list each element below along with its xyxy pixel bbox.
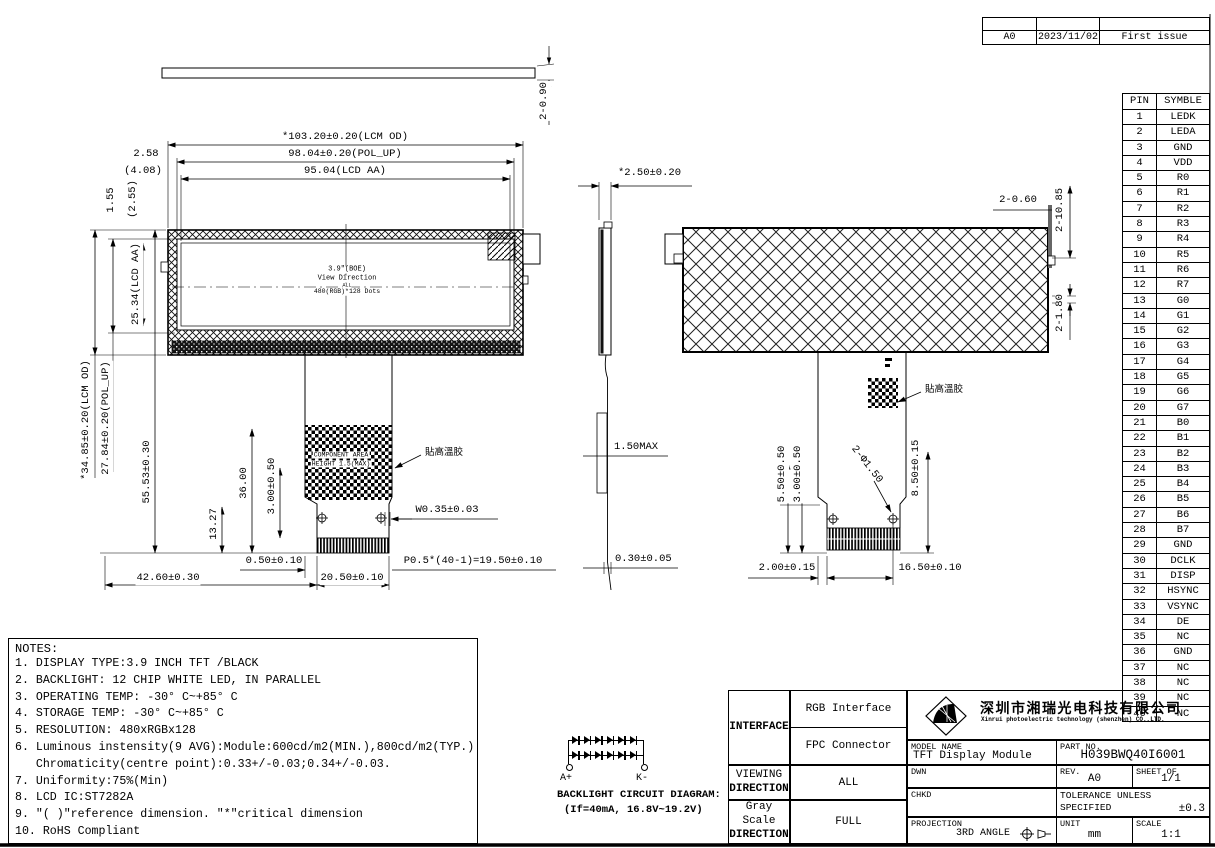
- anode-terminal-icon: [566, 764, 573, 771]
- pin-row: 32HSYNC: [1123, 584, 1209, 599]
- pin-symbol: DISP: [1157, 569, 1209, 583]
- led-icon: [572, 751, 582, 760]
- tolerance-value: ±0.3: [1179, 803, 1205, 815]
- unit-label: UNIT: [1060, 819, 1080, 829]
- screen-size-label: 3.9"(BOE): [328, 267, 366, 274]
- pin-table-body: 1LEDK2LEDA3GND4VDD5R06R17R28R39R410R511R…: [1123, 110, 1209, 721]
- pin-row: 1LEDK: [1123, 110, 1209, 125]
- pin-number: 6: [1123, 186, 1157, 200]
- screen-view-direction-label: View Direction: [318, 276, 377, 283]
- pin-row: 17G4: [1123, 355, 1209, 370]
- pin-row: 10R5: [1123, 248, 1209, 263]
- chkd-label: CHKD: [911, 790, 931, 800]
- pin-symbol: B4: [1157, 477, 1209, 491]
- part-no-cell: PART NO. H039BWQ40I6001: [1056, 740, 1210, 765]
- pin-number: 10: [1123, 248, 1157, 262]
- pin-symbol: VDD: [1157, 156, 1209, 170]
- company-logo-cell: 深圳市湘瑞光电科技有限公司 Xinrui photoelectric techn…: [907, 690, 1210, 740]
- third-angle-symbol-icon: [1020, 827, 1052, 841]
- connector-type: FPC Connector: [791, 728, 906, 764]
- note-line: 3. OPERATING TEMP: -30° C~+85° C: [15, 690, 477, 707]
- pin-row: 18G5: [1123, 370, 1209, 385]
- dim-2-58: 2.58: [132, 149, 159, 161]
- pin-number: 25: [1123, 477, 1157, 491]
- pin-header: PIN: [1123, 94, 1157, 109]
- pin-number: 32: [1123, 584, 1157, 598]
- pin-row: 9R4: [1123, 232, 1209, 247]
- engineering-drawing-sheet: 2-0.90 *103.20±0.20(LCM OD) 98.04±0.20(P…: [0, 0, 1215, 848]
- pin-row: 26B5: [1123, 492, 1209, 507]
- pin-symbol: HSYNC: [1157, 584, 1209, 598]
- pin-symbol: B7: [1157, 523, 1209, 537]
- dim-0-50: 0.50±0.10: [245, 556, 304, 568]
- pin-row: 7R2: [1123, 202, 1209, 217]
- pin-number: 19: [1123, 385, 1157, 399]
- pin-row: 2LEDA: [1123, 125, 1209, 140]
- gray-scale-value-cell: FULL: [790, 800, 907, 844]
- rev-value: A0: [1057, 773, 1132, 785]
- gray-scale-label-line1: Gray Scale: [729, 801, 789, 829]
- company-name-en: Xinrui photoelectric technology (shenzhe…: [981, 716, 1165, 723]
- led-icon: [595, 736, 605, 745]
- viewing-direction-label-cell: VIEWING DIRECTION: [728, 765, 790, 800]
- pin-symbol: G7: [1157, 401, 1209, 415]
- led-icon: [607, 751, 617, 760]
- pin-number: 14: [1123, 309, 1157, 323]
- side-view: [597, 222, 612, 590]
- pin-number: 12: [1123, 278, 1157, 292]
- sheet-cell: SHEET OF 1/1: [1132, 765, 1210, 788]
- dim-lcm-od-width: *103.20±0.20(LCM OD): [281, 132, 409, 144]
- viewing-direction-value: ALL: [791, 766, 906, 799]
- pin-symbol: LEDK: [1157, 110, 1209, 124]
- top-view: [162, 46, 554, 125]
- pin-number: 28: [1123, 523, 1157, 537]
- tape-annotation-back: 貼高溫胶: [924, 385, 964, 395]
- pin-number: 17: [1123, 355, 1157, 369]
- cathode-terminal-icon: [641, 764, 648, 771]
- interface-type: RGB Interface: [791, 691, 906, 727]
- company-name-cn: 深圳市湘瑞光电科技有限公司: [980, 698, 1182, 718]
- pin-row: 6R1: [1123, 186, 1209, 201]
- dim-2-55: (2.55): [128, 179, 140, 219]
- pin-row: 16G3: [1123, 339, 1209, 354]
- scale-value: 1:1: [1133, 829, 1209, 841]
- pin-row: 38NC: [1123, 676, 1209, 691]
- pin-number: 35: [1123, 630, 1157, 644]
- dim-aa-height: 25.34(LCD AA): [131, 242, 143, 326]
- company-logo-icon: [924, 695, 968, 737]
- pin-symbol: GND: [1157, 645, 1209, 659]
- pin-number: 16: [1123, 339, 1157, 353]
- revision-description: First issue: [1099, 30, 1210, 45]
- dim-1-55: 1.55: [106, 186, 118, 213]
- pin-symbol: B6: [1157, 508, 1209, 522]
- projection-cell: PROJECTION 3RD ANGLE: [907, 817, 1057, 844]
- revision-header-rev: [982, 17, 1037, 31]
- gray-scale-label-line2: DIRECTION: [729, 829, 788, 843]
- interface-row2-cell: FPC Connector: [790, 727, 907, 765]
- led-icon: [630, 751, 640, 760]
- dim-aa-width: 95.04(LCD AA): [303, 166, 387, 178]
- note-line: 9. ″( )″reference dimension. ″*″critical…: [15, 807, 477, 824]
- note-line: 5. RESOLUTION: 480xRGBx128: [15, 723, 477, 740]
- tape-annotation-front: 貼高溫胶: [424, 448, 464, 458]
- pin-symbol: VSYNC: [1157, 600, 1209, 614]
- pin-number: 22: [1123, 431, 1157, 445]
- pin-number: 11: [1123, 263, 1157, 277]
- component-height-label: HEIGHT 1.5(MAX): [311, 460, 372, 467]
- led-icon: [630, 736, 640, 745]
- projection-value: 3RD ANGLE: [956, 828, 1010, 839]
- projection-label: PROJECTION: [911, 819, 962, 829]
- model-name-value: TFT Display Module: [908, 750, 1056, 762]
- dim-4-08: (4.08): [123, 166, 163, 178]
- screen-resolution-label: 480(RGB)*128 Dots: [314, 289, 380, 296]
- pin-row: 13G0: [1123, 294, 1209, 309]
- dim-back-5-50: 5.50±0.50: [777, 445, 789, 504]
- circuit-wire: [568, 740, 569, 764]
- pin-number: 15: [1123, 324, 1157, 338]
- dim-back-8-50: 8.50±0.15: [911, 439, 923, 498]
- pin-row: 27B6: [1123, 508, 1209, 523]
- pin-row: 15G2: [1123, 324, 1209, 339]
- pin-symbol: DCLK: [1157, 554, 1209, 568]
- pin-symbol: R2: [1157, 202, 1209, 216]
- back-view: [665, 205, 1055, 550]
- pin-symbol: R7: [1157, 278, 1209, 292]
- scale-label: SCALE: [1136, 819, 1162, 829]
- pin-row: 35NC: [1123, 630, 1209, 645]
- pin-row: 14G1: [1123, 309, 1209, 324]
- pin-symbol: G1: [1157, 309, 1209, 323]
- pin-row: 36GND: [1123, 645, 1209, 660]
- dim-back-1-80: 2-1.80: [1055, 293, 1067, 333]
- pin-symbol: G6: [1157, 385, 1209, 399]
- pin-symbol: R4: [1157, 232, 1209, 246]
- pin-symbol: B3: [1157, 462, 1209, 476]
- led-icon: [607, 736, 617, 745]
- pin-row: 33VSYNC: [1123, 600, 1209, 615]
- pin-number: 26: [1123, 492, 1157, 506]
- dim-55-53: 55.53±0.30: [142, 439, 154, 504]
- pin-number: 1: [1123, 110, 1157, 124]
- component-area-label: COMPONENT AREA: [313, 451, 370, 458]
- pin-table-header: PIN SYMBLE: [1123, 94, 1209, 110]
- tolerance-label-line1: TOLERANCE UNLESS: [1060, 790, 1151, 801]
- pin-row: 12R7: [1123, 278, 1209, 293]
- led-icon: [618, 751, 628, 760]
- pin-row: 34DE: [1123, 615, 1209, 630]
- note-line: 10. RoHS Compliant: [15, 824, 477, 841]
- pin-row: 19G6: [1123, 385, 1209, 400]
- dim-w0-35: W0.35±0.03: [414, 505, 479, 517]
- pin-symbol: NC: [1157, 676, 1209, 690]
- cathode-label: K-: [636, 773, 648, 784]
- circuit-wire: [643, 740, 644, 764]
- pin-table: PIN SYMBLE 1LEDK2LEDA3GND4VDD5R06R17R28R…: [1122, 93, 1210, 722]
- pin-symbol: G5: [1157, 370, 1209, 384]
- rev-cell: REV. A0: [1056, 765, 1133, 788]
- pin-row: 30DCLK: [1123, 554, 1209, 569]
- pin-symbol: NC: [1157, 661, 1209, 675]
- pin-symbol: B5: [1157, 492, 1209, 506]
- pin-number: 13: [1123, 294, 1157, 308]
- pin-row: 4VDD: [1123, 156, 1209, 171]
- pin-number: 3: [1123, 141, 1157, 155]
- pin-number: 38: [1123, 676, 1157, 690]
- front-dimension-lines: [90, 141, 556, 590]
- tolerance-label-line2: SPECIFIED: [1060, 802, 1111, 813]
- pin-row: 8R3: [1123, 217, 1209, 232]
- backlight-diagram-spec: (If=40mA, 16.8V~19.2V): [564, 804, 703, 816]
- led-icon: [584, 751, 594, 760]
- pin-number: 29: [1123, 538, 1157, 552]
- dim-42-60: 42.60±0.30: [135, 573, 200, 585]
- pin-row: 29GND: [1123, 538, 1209, 553]
- pin-number: 31: [1123, 569, 1157, 583]
- anode-label: A+: [560, 773, 572, 784]
- led-icon: [595, 751, 605, 760]
- pin-number: 27: [1123, 508, 1157, 522]
- pin-row: 31DISP: [1123, 569, 1209, 584]
- pin-symbol: G0: [1157, 294, 1209, 308]
- tolerance-cell: TOLERANCE UNLESS SPECIFIED ±0.3: [1056, 788, 1210, 817]
- pin-row: 37NC: [1123, 661, 1209, 676]
- dim-lcm-od-height: *34.85±0.20(LCM OD): [81, 359, 93, 481]
- unit-cell: UNIT mm: [1056, 817, 1133, 844]
- pin-number: 36: [1123, 645, 1157, 659]
- pin-row: 23B2: [1123, 447, 1209, 462]
- dim-13-27: 13.27: [209, 507, 221, 541]
- pin-row: 11R6: [1123, 263, 1209, 278]
- dim-back-10-85: 2-10.85: [1055, 187, 1067, 233]
- pin-row: 5R0: [1123, 171, 1209, 186]
- notes-title: NOTES:: [15, 642, 477, 656]
- interface-row1-cell: RGB Interface: [790, 690, 907, 728]
- pin-symbol: G3: [1157, 339, 1209, 353]
- pin-number: 24: [1123, 462, 1157, 476]
- revision-rev: A0: [982, 30, 1037, 45]
- dim-side-thickness: *2.50±0.20: [617, 168, 682, 180]
- dwn-label: DWN: [911, 767, 926, 777]
- model-name-cell: MODEL NAME TFT Display Module: [907, 740, 1057, 765]
- pin-symbol: R3: [1157, 217, 1209, 231]
- dim-top-thickness: 2-0.90: [539, 81, 551, 121]
- pin-symbol: R0: [1157, 171, 1209, 185]
- pin-symbol: R5: [1157, 248, 1209, 262]
- pin-row: 21B0: [1123, 416, 1209, 431]
- revision-date: 2023/11/02: [1036, 30, 1100, 45]
- pin-symbol: B2: [1157, 447, 1209, 461]
- pin-symbol: G4: [1157, 355, 1209, 369]
- pin-symbol: R1: [1157, 186, 1209, 200]
- unit-value: mm: [1057, 829, 1132, 841]
- note-line: 4. STORAGE TEMP: -30° C~+85° C: [15, 706, 477, 723]
- pin-number: 23: [1123, 447, 1157, 461]
- pin-row: 20G7: [1123, 401, 1209, 416]
- pin-row: 25B4: [1123, 477, 1209, 492]
- pin-number: 5: [1123, 171, 1157, 185]
- pin-number: 33: [1123, 600, 1157, 614]
- scale-cell: SCALE 1:1: [1132, 817, 1210, 844]
- backlight-diagram-title: BACKLIGHT CIRCUIT DIAGRAM:: [557, 789, 721, 801]
- dim-back-0-60: 2-0.60: [998, 195, 1038, 207]
- dim-back-3-00: 3.00±0.50: [793, 445, 805, 504]
- backlight-circuit: A+ K-: [556, 731, 666, 791]
- note-line: Chromaticity(centre point):0.33+/-0.03;0…: [15, 757, 477, 774]
- chkd-cell: CHKD: [907, 788, 1057, 817]
- pin-symbol: B1: [1157, 431, 1209, 445]
- note-line: 7. Uniformity:75%(Min): [15, 774, 477, 791]
- pin-number: 37: [1123, 661, 1157, 675]
- notes-list: 1. DISPLAY TYPE:3.9 INCH TFT /BLACK2. BA…: [15, 656, 477, 841]
- pin-symbol: G2: [1157, 324, 1209, 338]
- pin-number: 2: [1123, 125, 1157, 139]
- dim-3-00: 3.00±0.50: [267, 457, 279, 516]
- symbol-header: SYMBLE: [1157, 94, 1209, 109]
- pin-number: 8: [1123, 217, 1157, 231]
- note-line: 6. Luminous instensity(9 AVG):Module:600…: [15, 740, 477, 757]
- pin-symbol: LEDA: [1157, 125, 1209, 139]
- dwn-cell: DWN: [907, 765, 1057, 788]
- pin-number: 9: [1123, 232, 1157, 246]
- pin-number: 20: [1123, 401, 1157, 415]
- led-icon: [572, 736, 582, 745]
- note-line: 1. DISPLAY TYPE:3.9 INCH TFT /BLACK: [15, 656, 477, 673]
- pin-number: 21: [1123, 416, 1157, 430]
- revision-header-desc: [1099, 17, 1210, 31]
- pin-number: 30: [1123, 554, 1157, 568]
- led-icon: [584, 736, 594, 745]
- pin-number: 4: [1123, 156, 1157, 170]
- pin-symbol: NC: [1157, 630, 1209, 644]
- dim-back-2-00: 2.00±0.15: [758, 563, 817, 575]
- viewing-label-line1: VIEWING: [736, 769, 782, 783]
- pin-row: 24B3: [1123, 462, 1209, 477]
- pin-symbol: GND: [1157, 141, 1209, 155]
- dim-36-00: 36.00: [239, 466, 251, 500]
- pin-symbol: GND: [1157, 538, 1209, 552]
- viewing-label-line2: DIRECTION: [729, 783, 788, 797]
- dim-pol-width: 98.04±0.20(POL_UP): [287, 149, 402, 161]
- led-icon: [618, 736, 628, 745]
- pin-row: 3GND: [1123, 141, 1209, 156]
- viewing-direction-value-cell: ALL: [790, 765, 907, 800]
- note-line: 2. BACKLIGHT: 12 CHIP WHITE LED, IN PARA…: [15, 673, 477, 690]
- dim-side-fpc-max: 1.50MAX: [613, 442, 659, 454]
- pin-row: 22B1: [1123, 431, 1209, 446]
- note-line: 8. LCD IC:ST7282A: [15, 790, 477, 807]
- revision-header-date: [1036, 17, 1100, 31]
- pin-number: 7: [1123, 202, 1157, 216]
- dim-20-50: 20.50±0.10: [319, 573, 384, 585]
- interface-label: INTERFACE: [729, 691, 789, 764]
- interface-label-cell: INTERFACE: [728, 690, 790, 765]
- pin-symbol: DE: [1157, 615, 1209, 629]
- gray-scale-value: FULL: [791, 801, 906, 843]
- dim-side-fpc-thickness: 0.30±0.05: [614, 554, 673, 566]
- part-no-value: H039BWQ40I6001: [1057, 748, 1209, 762]
- pin-row: 28B7: [1123, 523, 1209, 538]
- notes-block: NOTES: 1. DISPLAY TYPE:3.9 INCH TFT /BLA…: [8, 638, 478, 844]
- pin-symbol: B0: [1157, 416, 1209, 430]
- dim-connector-pitch: P0.5*(40-1)=19.50±0.10: [403, 556, 544, 568]
- gray-scale-label-cell: Gray Scale DIRECTION: [728, 800, 790, 844]
- pin-number: 34: [1123, 615, 1157, 629]
- dim-pol-height: 27.84±0.20(POL_UP): [101, 360, 113, 475]
- pin-symbol: R6: [1157, 263, 1209, 277]
- sheet-value: 1/1: [1133, 773, 1209, 785]
- pin-number: 18: [1123, 370, 1157, 384]
- dim-back-16-50: 16.50±0.10: [897, 563, 962, 575]
